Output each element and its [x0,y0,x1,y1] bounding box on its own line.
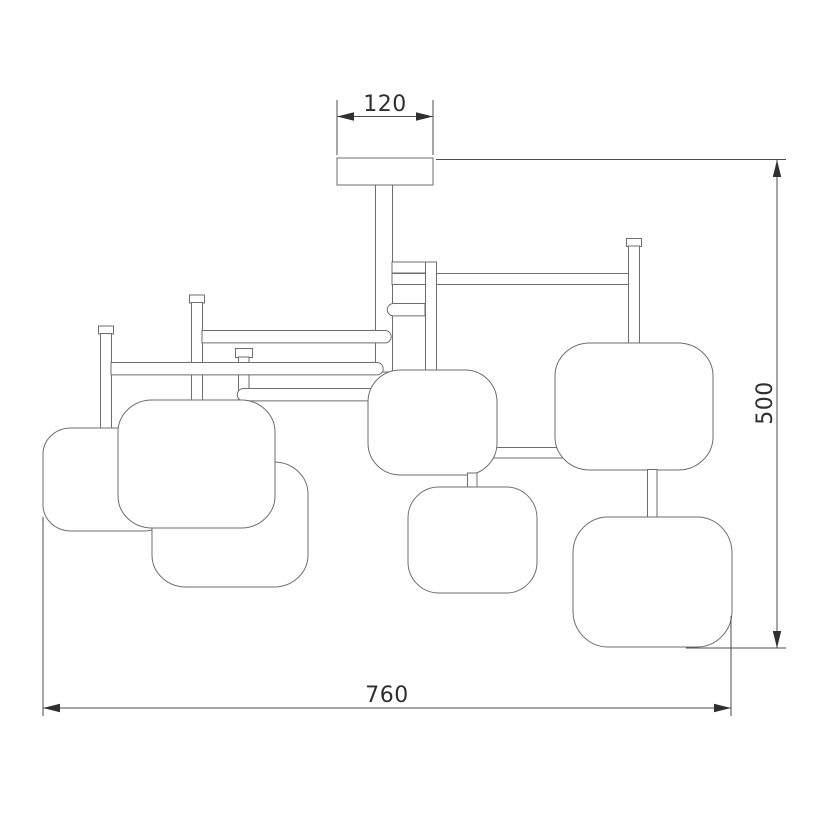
rod-mid-left-cap [236,349,253,358]
arrowhead-500-top-icon [773,160,781,177]
rod-left-cap [190,295,205,303]
technical-drawing-canvas: 120 500 760 [0,0,816,816]
arrowhead-760-left-icon [43,704,60,712]
shade-center-lower [408,487,537,593]
rod-far-left [101,334,112,429]
rod-far-left-cap [99,326,114,334]
dim-label-overall-width: 760 [365,683,409,708]
arrowhead-120-left-icon [337,112,354,121]
arm-upper-short [392,262,426,273]
arm-stem-to-center-rod [387,304,425,316]
arm-far-left-to-stem [111,363,383,375]
rod-left [192,303,203,402]
rod-right-cap [627,239,642,247]
shade-right-lower [573,517,732,647]
dim-label-overall-height: 500 [753,381,778,425]
central-stem-tube [376,184,393,372]
shade-right-upper [555,343,713,470]
arrowhead-500-bottom-icon [773,631,781,648]
fixture [43,158,732,647]
ceiling-canopy [337,158,433,185]
chandelier-dimension-drawing: 120 500 760 [0,0,816,816]
arm-left-to-stem [202,331,391,343]
arrowhead-120-right-icon [416,112,433,121]
rod-right [629,246,640,344]
shade-center [368,370,497,475]
shade-left-upper [118,400,275,528]
rod-right-lower [648,470,658,519]
arm-mid-left-to-center [237,389,372,401]
dim-label-canopy-width: 120 [363,92,407,117]
rod-center [426,262,437,371]
arrowhead-760-right-icon [714,704,731,712]
